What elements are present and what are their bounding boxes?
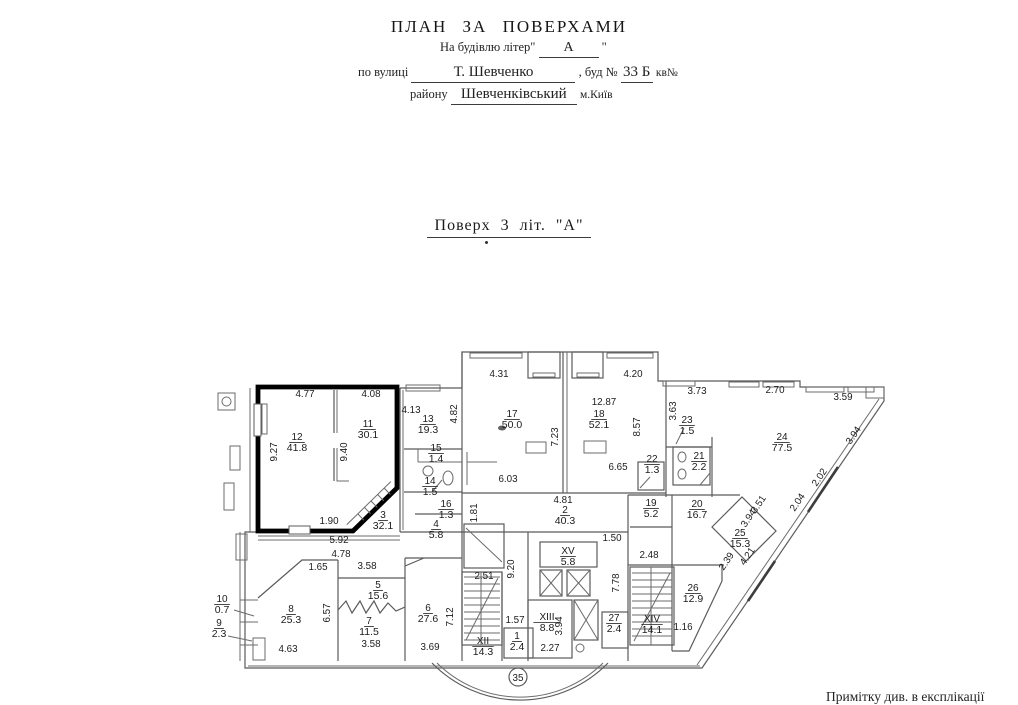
plan-labels: 1241.81130.1332.11319.3151.4141.5161.345… [212, 369, 864, 658]
room-area: 27.6 [418, 613, 439, 625]
dimension-label: 7.23 [550, 427, 561, 447]
dimension-label: 3.58 [357, 561, 377, 572]
room-area: 32.1 [373, 520, 394, 532]
dimension-label: 6.57 [322, 603, 333, 622]
room-area: 1.3 [645, 464, 660, 476]
dimension-label: 3.59 [833, 392, 852, 403]
toilet-icon [678, 469, 686, 479]
dimension-label: 4.82 [449, 404, 460, 423]
dimension-label: 3.63 [668, 401, 679, 421]
room-area: 15.6 [368, 590, 389, 602]
room-area: 5.2 [644, 508, 659, 520]
folding-partition [338, 601, 405, 613]
window-top-17 [470, 353, 522, 358]
floor-plan-drawing: 35 1241.81130.1332.11319.3151.4141.5161.… [0, 0, 1018, 704]
room-area: 5.8 [429, 529, 444, 541]
dimension-label: 4.31 [489, 369, 508, 380]
dimension-label: 3.69 [420, 642, 439, 653]
sink-icon [423, 466, 433, 476]
room-area: 50.0 [502, 419, 523, 431]
dimension-label: 6.65 [608, 462, 628, 473]
room-area: 2.2 [692, 461, 707, 473]
room-area: 52.1 [589, 419, 610, 431]
dimension-label: 1.50 [602, 533, 622, 544]
scanned-floor-plan-document: { "header": { "title": "ПЛАН ЗА ПОВЕРХАМ… [0, 0, 1018, 704]
dimension-label: 4.63 [278, 644, 298, 655]
toilet-icon [678, 452, 686, 462]
room-area: 2.4 [607, 623, 622, 635]
dimension-label: 2.51 [474, 571, 493, 582]
dimension-label: 1.65 [308, 562, 328, 573]
room-area: 19.3 [418, 424, 439, 436]
dimension-label: 9.20 [506, 559, 517, 579]
dimension-label: 5.92 [329, 535, 348, 546]
dimension-label: 3.73 [687, 386, 707, 397]
dimension-label: 9.40 [339, 442, 350, 462]
room-area: 77.5 [772, 442, 793, 454]
dimension-label: 2.04 [788, 491, 808, 513]
stairs-xii-treads [464, 572, 500, 645]
window-left [254, 404, 261, 436]
toilet-icon [443, 471, 453, 485]
dimension-label: 3.58 [361, 639, 381, 650]
apartment-interior-walls [262, 390, 391, 525]
entrance-number: 35 [513, 673, 524, 684]
dimension-label: 12.87 [592, 397, 617, 408]
room-area: 14.3 [473, 646, 494, 658]
room-area: 2.4 [510, 641, 525, 653]
room-area: 14.1 [642, 624, 663, 636]
void-shaft [464, 524, 504, 568]
room-area: 12.9 [683, 593, 704, 605]
dimension-label: 2.39 [717, 551, 737, 573]
room-area: 40.3 [555, 515, 576, 527]
dimension-label: 9.27 [269, 442, 280, 461]
room-area: 5.8 [561, 556, 576, 568]
window-top-18 [607, 353, 653, 358]
dimension-label: 2.70 [765, 385, 785, 396]
room-area: 8.8 [540, 622, 555, 634]
dimension-label: 2.48 [639, 550, 659, 561]
window [729, 382, 759, 387]
dimension-label: 4.78 [331, 549, 351, 560]
room-area: 1.3 [439, 509, 454, 521]
dimension-label: 4.08 [361, 389, 381, 400]
dimension-label: 7.78 [611, 573, 622, 593]
room-area: 1.4 [429, 453, 444, 465]
dimension-label: 1.81 [469, 503, 480, 522]
room-area: 2.3 [212, 628, 227, 640]
dimension-label: 8.57 [632, 417, 643, 436]
dimension-label: 4.13 [401, 405, 421, 416]
dimension-label: 1.57 [505, 615, 524, 626]
room-area: 1.5 [423, 486, 438, 498]
dimension-label: 6.03 [498, 474, 518, 485]
dimension-label: 4.81 [553, 495, 572, 506]
room-area: 0.7 [215, 604, 230, 616]
room-area: 25.3 [281, 614, 302, 626]
dimension-label: 7.12 [445, 607, 456, 626]
room-area: 16.7 [687, 509, 708, 521]
dimension-label: 1.16 [673, 622, 693, 633]
room-area: 1.5 [680, 425, 695, 437]
dimension-label: 1.90 [319, 516, 339, 527]
dimension-label: 4.77 [295, 389, 314, 400]
room-area: 11.5 [359, 626, 379, 638]
dimension-label: 3.94 [554, 616, 565, 636]
room-area: 30.1 [358, 429, 379, 441]
dimension-label: 2.27 [540, 643, 559, 654]
leader-room-10 [234, 610, 254, 616]
room-area: 41.8 [287, 442, 308, 454]
dimension-label: 4.20 [623, 369, 643, 380]
window-bottom [289, 526, 310, 534]
